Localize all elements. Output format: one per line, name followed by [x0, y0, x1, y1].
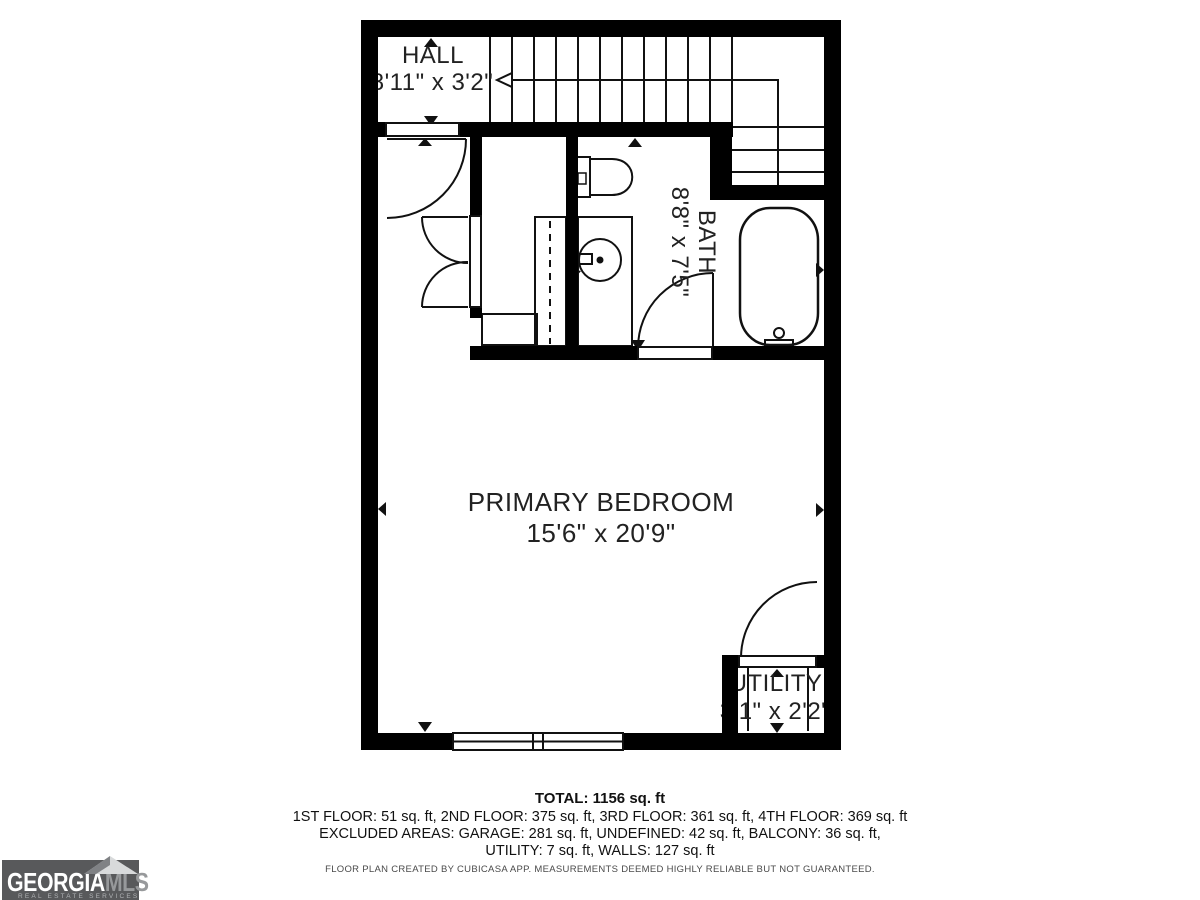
floor-plan-page: HALL 8'11" x 3'2" BATH 8'8" x 7'5" PRIMA…	[0, 0, 1200, 900]
bedroom-window-icon	[0, 0, 1200, 900]
logo-roof-icon	[80, 853, 142, 877]
logo-tagline: REAL ESTATE SERVICES	[18, 893, 139, 900]
